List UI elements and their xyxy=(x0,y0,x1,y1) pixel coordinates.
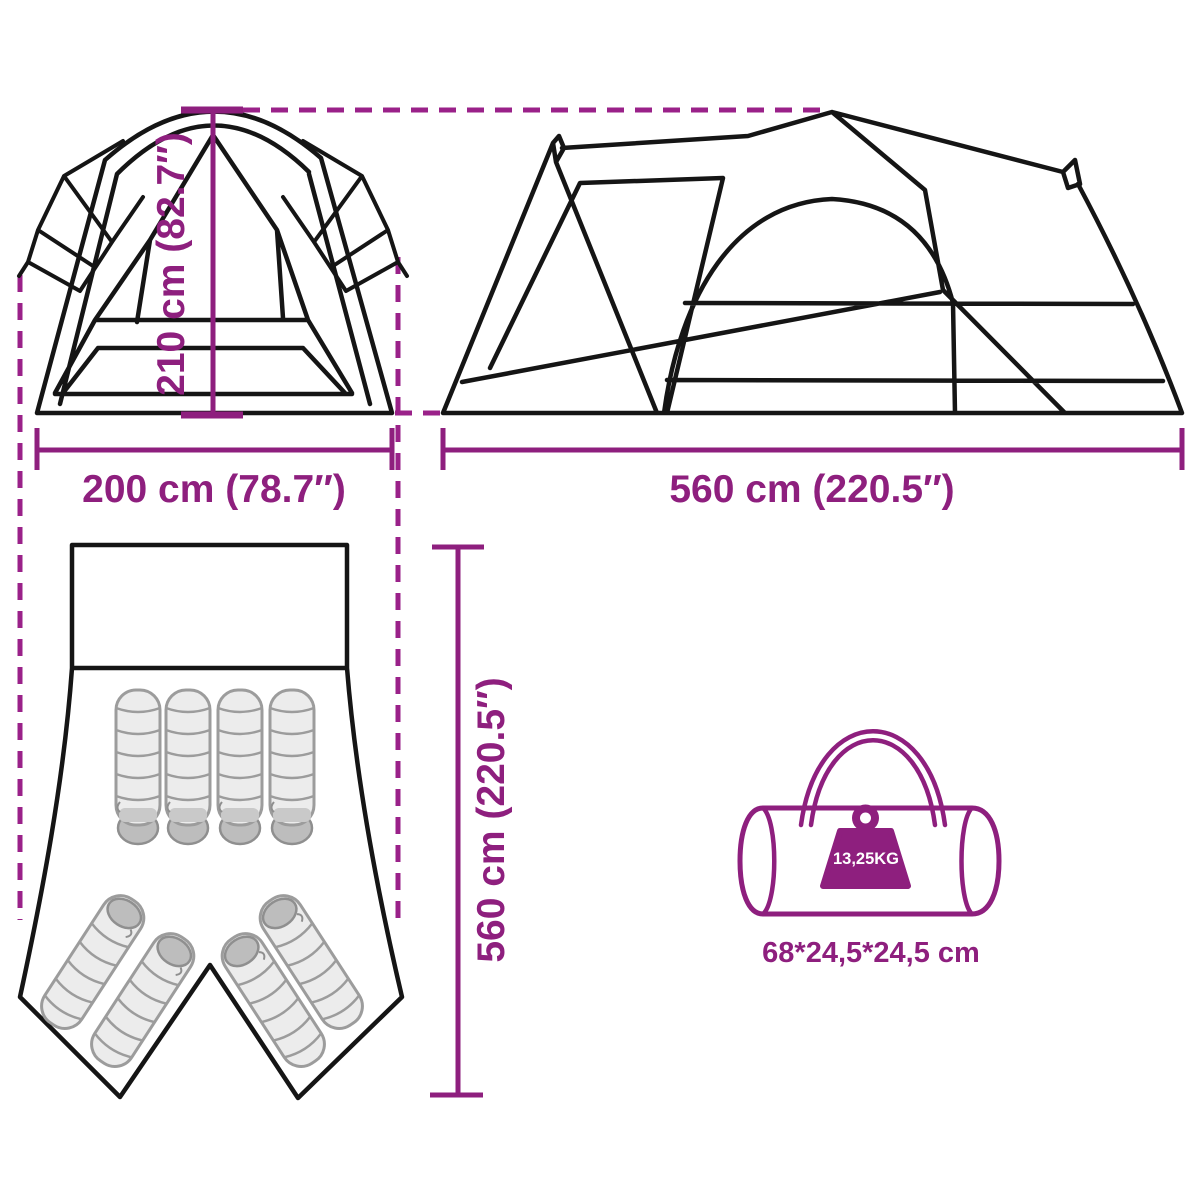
tent-side-view-illustration xyxy=(443,112,1182,413)
sleeping-bag-icon xyxy=(166,690,210,844)
side-length-dimension-line xyxy=(443,428,1182,470)
sleeping-bag-icon xyxy=(270,690,314,844)
front-width-dimension: 200 cm (78.7″) xyxy=(37,428,392,511)
weight-label: 13,25KG xyxy=(833,850,899,868)
side-view-line-art xyxy=(443,112,1182,413)
side-length-dimension: 560 cm (220.5″) xyxy=(443,428,1182,511)
tent-floor-plan-illustration xyxy=(20,545,402,1098)
side-length-dimension-label: 560 cm (220.5″) xyxy=(669,468,954,511)
sleeping-bag-icon xyxy=(218,690,262,844)
width-dimension-line xyxy=(37,428,392,470)
sleeping-bag-icon xyxy=(116,690,160,844)
carry-bag-illustration: 13,25KG 68*24,5*24,5 cm xyxy=(740,731,999,969)
carry-bag-dimensions-label: 68*24,5*24,5 cm xyxy=(762,937,980,969)
diagram-canvas: 210 cm (82.7″) 200 cm (78.7″) 560 cm (22… xyxy=(0,0,1200,1200)
height-dimension-label: 210 cm (82.7″) xyxy=(150,132,193,396)
floor-plan-depth-dimension: 560 cm (220.5″) xyxy=(430,547,513,1095)
tent-dimensions-diagram: 210 cm (82.7″) 200 cm (78.7″) 560 cm (22… xyxy=(0,0,1200,1200)
width-dimension-label: 200 cm (78.7″) xyxy=(82,468,346,511)
floor-plan-depth-dimension-label: 560 cm (220.5″) xyxy=(470,677,513,962)
